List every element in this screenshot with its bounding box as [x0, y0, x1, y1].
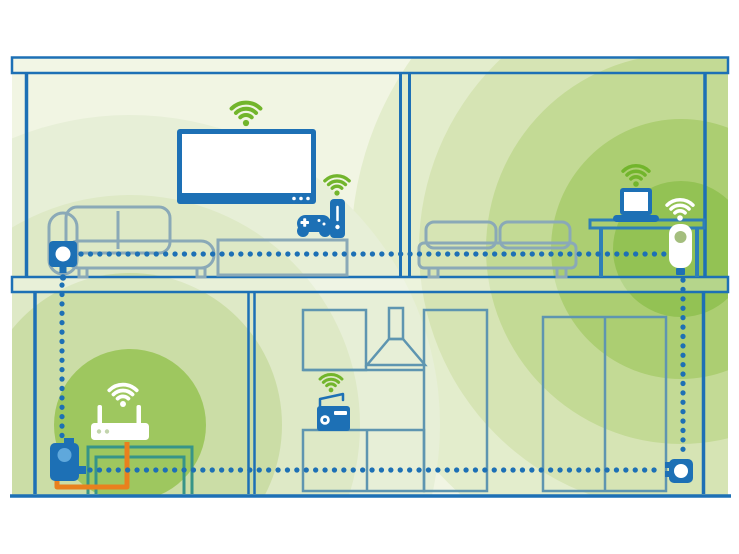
diagram-canvas [0, 0, 739, 554]
radio-display [334, 411, 347, 415]
laptop-screen [624, 192, 648, 211]
home-network-diagram [0, 0, 739, 554]
tv-screen [182, 134, 311, 193]
router-antenna [98, 405, 103, 425]
floor-slab-tint [12, 277, 728, 292]
router-antenna [137, 405, 142, 425]
game-console [330, 199, 345, 238]
wall-socket-lower-right [665, 459, 693, 483]
tv [177, 129, 316, 204]
laptop-keyboard [613, 215, 659, 222]
